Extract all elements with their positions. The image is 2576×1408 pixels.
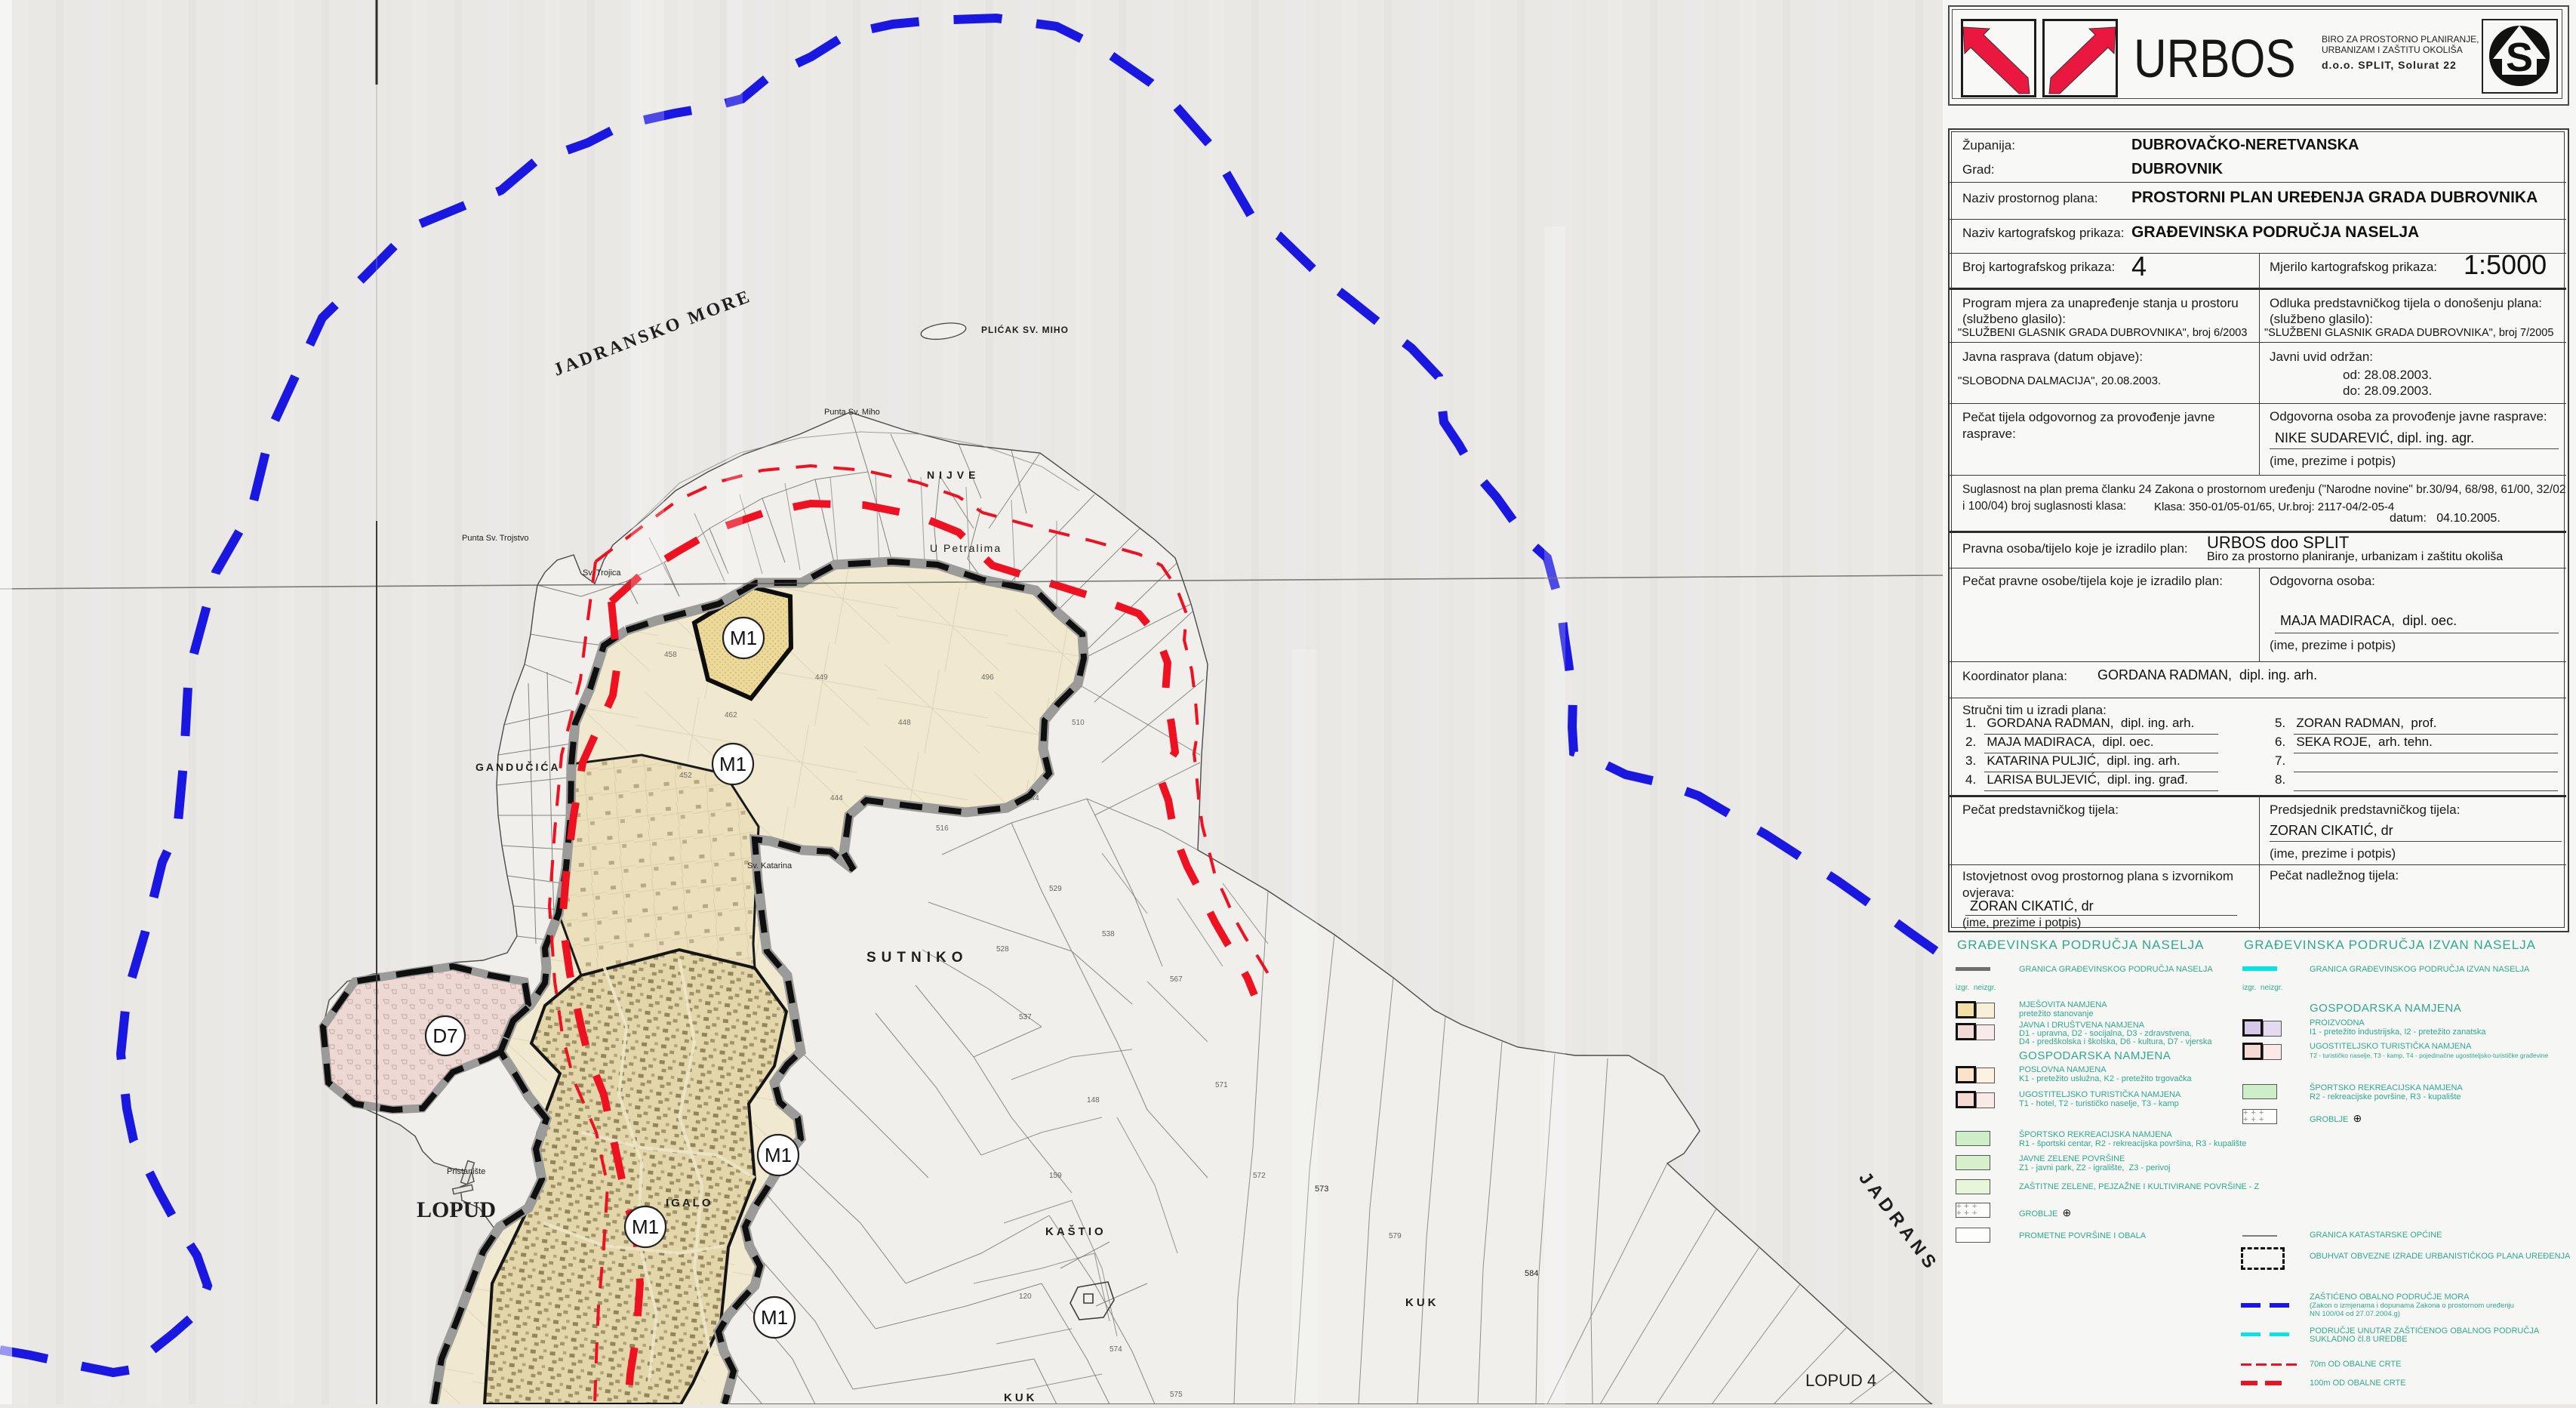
svg-text:M1: M1 bbox=[632, 1215, 659, 1238]
svg-text:537: 537 bbox=[1019, 1013, 1032, 1021]
svg-text:574: 574 bbox=[1109, 1345, 1122, 1354]
svg-text:529: 529 bbox=[1049, 885, 1062, 893]
svg-text:516: 516 bbox=[936, 824, 949, 833]
svg-text:496: 496 bbox=[981, 673, 994, 682]
svg-text:120: 120 bbox=[1019, 1292, 1032, 1301]
svg-text:Punta Sv. Miho: Punta Sv. Miho bbox=[824, 408, 880, 417]
svg-text:575: 575 bbox=[1170, 1391, 1183, 1399]
svg-text:U Petralima: U Petralima bbox=[930, 542, 1002, 554]
svg-text:573: 573 bbox=[1315, 1185, 1328, 1194]
svg-text:NIJVE: NIJVE bbox=[927, 469, 980, 481]
svg-text:PLIĆAK SV. MIHO: PLIĆAK SV. MIHO bbox=[981, 324, 1069, 335]
svg-text:M1: M1 bbox=[719, 753, 746, 775]
svg-text:452: 452 bbox=[679, 772, 692, 780]
svg-text:KUK: KUK bbox=[1405, 1296, 1439, 1309]
svg-text:S: S bbox=[2506, 35, 2533, 80]
svg-text:SUTNIKO: SUTNIKO bbox=[866, 950, 968, 966]
svg-text:462: 462 bbox=[725, 711, 737, 719]
svg-text:444: 444 bbox=[830, 794, 843, 803]
svg-text:Punta Sv. Trojstvo: Punta Sv. Trojstvo bbox=[462, 534, 528, 543]
svg-text:M1: M1 bbox=[730, 627, 757, 649]
svg-text:Sv. Katarina: Sv. Katarina bbox=[747, 861, 792, 870]
svg-text:Sv. Trojica: Sv. Trojica bbox=[583, 568, 621, 578]
svg-text:448: 448 bbox=[898, 719, 911, 727]
svg-text:579: 579 bbox=[1389, 1232, 1402, 1240]
svg-text:LOPUD 4: LOPUD 4 bbox=[1805, 1371, 1876, 1390]
svg-text:M1: M1 bbox=[761, 1306, 788, 1329]
svg-text:Pristanište: Pristanište bbox=[447, 1167, 485, 1176]
svg-text:148: 148 bbox=[1087, 1096, 1100, 1105]
svg-text:571: 571 bbox=[1215, 1081, 1228, 1089]
svg-text:KUK: KUK bbox=[1004, 1391, 1038, 1404]
svg-text:449: 449 bbox=[815, 673, 828, 682]
svg-text:510: 510 bbox=[1072, 719, 1085, 727]
svg-text:528: 528 bbox=[996, 945, 1009, 954]
svg-text:458: 458 bbox=[664, 651, 677, 659]
svg-text:159: 159 bbox=[1049, 1172, 1062, 1180]
svg-text:584: 584 bbox=[1525, 1269, 1538, 1278]
svg-text:LOPUD: LOPUD bbox=[417, 1197, 496, 1222]
svg-text:KAŠTIO: KAŠTIO bbox=[1045, 1225, 1106, 1238]
svg-text:IGALO: IGALO bbox=[666, 1197, 713, 1209]
svg-text:572: 572 bbox=[1253, 1172, 1266, 1180]
svg-text:GANDUČIĆA: GANDUČIĆA bbox=[475, 760, 561, 773]
svg-text:D7: D7 bbox=[432, 1024, 457, 1047]
svg-text:567: 567 bbox=[1170, 975, 1183, 984]
svg-text:538: 538 bbox=[1102, 930, 1115, 938]
svg-text:M1: M1 bbox=[765, 1144, 792, 1166]
